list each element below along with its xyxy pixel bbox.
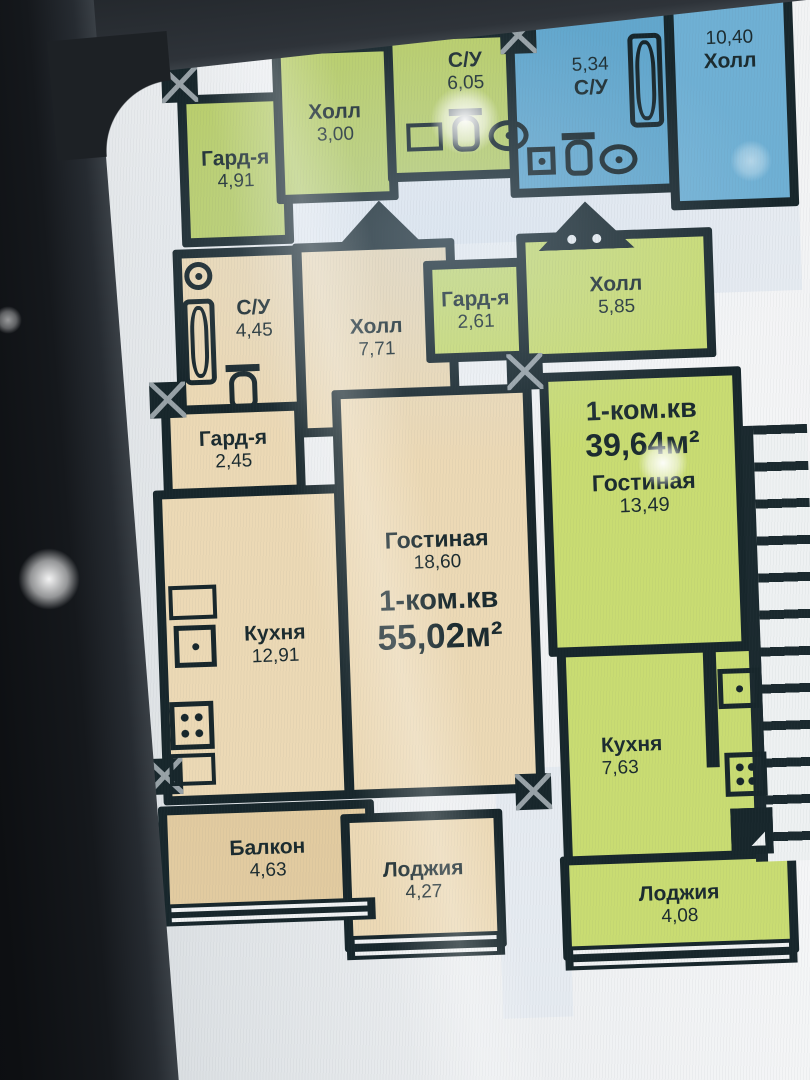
room-name: С/У — [236, 295, 271, 320]
room-area: 4,27 — [405, 881, 443, 904]
room-name: Балкон — [229, 835, 306, 862]
washing-machine-icon — [406, 122, 443, 151]
room-hall-top-left[interactable]: Холл 3,00 — [271, 42, 398, 204]
wall-hatch-icon — [149, 382, 186, 419]
room-living-right[interactable]: 1-ком.кв 39,64м² Гостиная 13,49 — [539, 366, 751, 657]
apartment-type-label: 1-ком.кв — [585, 393, 697, 428]
room-wardrobe-middle[interactable]: Гард-я 2,61 — [423, 258, 528, 363]
kitchen-counter-icon — [168, 585, 217, 621]
room-area: 4,91 — [217, 170, 255, 193]
room-name: Гард-я — [441, 286, 510, 313]
bathtub-icon — [182, 298, 217, 385]
room-name: Лоджия — [382, 856, 463, 883]
room-area: 12,91 — [251, 644, 299, 667]
room-area: 2,45 — [215, 450, 253, 473]
room-area: 10,40 — [705, 26, 753, 49]
wall-hatch-icon — [515, 773, 552, 810]
room-name: Гостиная — [384, 524, 489, 554]
wall-hatch-icon — [506, 353, 543, 390]
apartment-area-label: 55,02м² — [377, 615, 503, 660]
room-area: 2,61 — [457, 311, 495, 334]
bathtub-icon — [627, 33, 664, 128]
washing-machine-icon — [527, 146, 556, 175]
room-name: Холл — [703, 48, 757, 74]
loggia-window-icon — [346, 931, 505, 960]
sink-icon — [174, 625, 217, 668]
stove-icon — [724, 751, 768, 796]
room-name: Холл — [308, 99, 362, 125]
room-name: Кухня — [601, 732, 663, 758]
room-area: 13,49 — [619, 494, 670, 519]
sink-icon — [717, 668, 760, 709]
room-area: 3,00 — [317, 124, 355, 147]
room-area: 7,63 — [601, 757, 639, 780]
room-living-left[interactable]: Гостиная 18,60 1-ком.кв 55,02м² — [331, 383, 545, 799]
room-name: Холл — [589, 272, 643, 298]
toilet-icon — [565, 139, 593, 176]
toilet-icon — [452, 115, 480, 152]
tablet-bezel-corner — [47, 31, 177, 161]
apartment-area-label: 39,64м² — [585, 424, 701, 465]
kitchen-counter-icon — [169, 753, 216, 787]
room-area: 7,71 — [358, 338, 396, 361]
room-area: 18,60 — [413, 551, 461, 574]
room-area: 6,05 — [447, 72, 485, 95]
room-area: 4,08 — [661, 905, 699, 928]
room-name: Лоджия — [638, 880, 719, 907]
apartment-type-label: 1-ком.кв — [379, 582, 499, 619]
room-hall-top-right[interactable]: 10,40 Холл — [664, 0, 800, 210]
room-name: Гостиная — [591, 467, 696, 497]
fridge-icon — [730, 807, 774, 854]
room-area: 5,34 — [571, 54, 609, 77]
room-area: 4,63 — [249, 859, 287, 882]
stove-icon — [169, 701, 215, 751]
room-name: Холл — [349, 314, 403, 340]
room-name: С/У — [448, 48, 483, 73]
room-name: С/У — [574, 75, 609, 100]
room-name: Кухня — [244, 620, 306, 646]
room-name: Гард-я — [199, 426, 268, 453]
room-area: 5,85 — [598, 296, 636, 319]
room-name: Гард-я — [201, 145, 270, 172]
photo-of-screen: Гард-я 4,91 Холл 3,00 С/У 6,05 5,34 С/У … — [0, 0, 810, 1080]
room-area: 4,45 — [235, 320, 273, 343]
toilet-icon — [229, 371, 258, 410]
